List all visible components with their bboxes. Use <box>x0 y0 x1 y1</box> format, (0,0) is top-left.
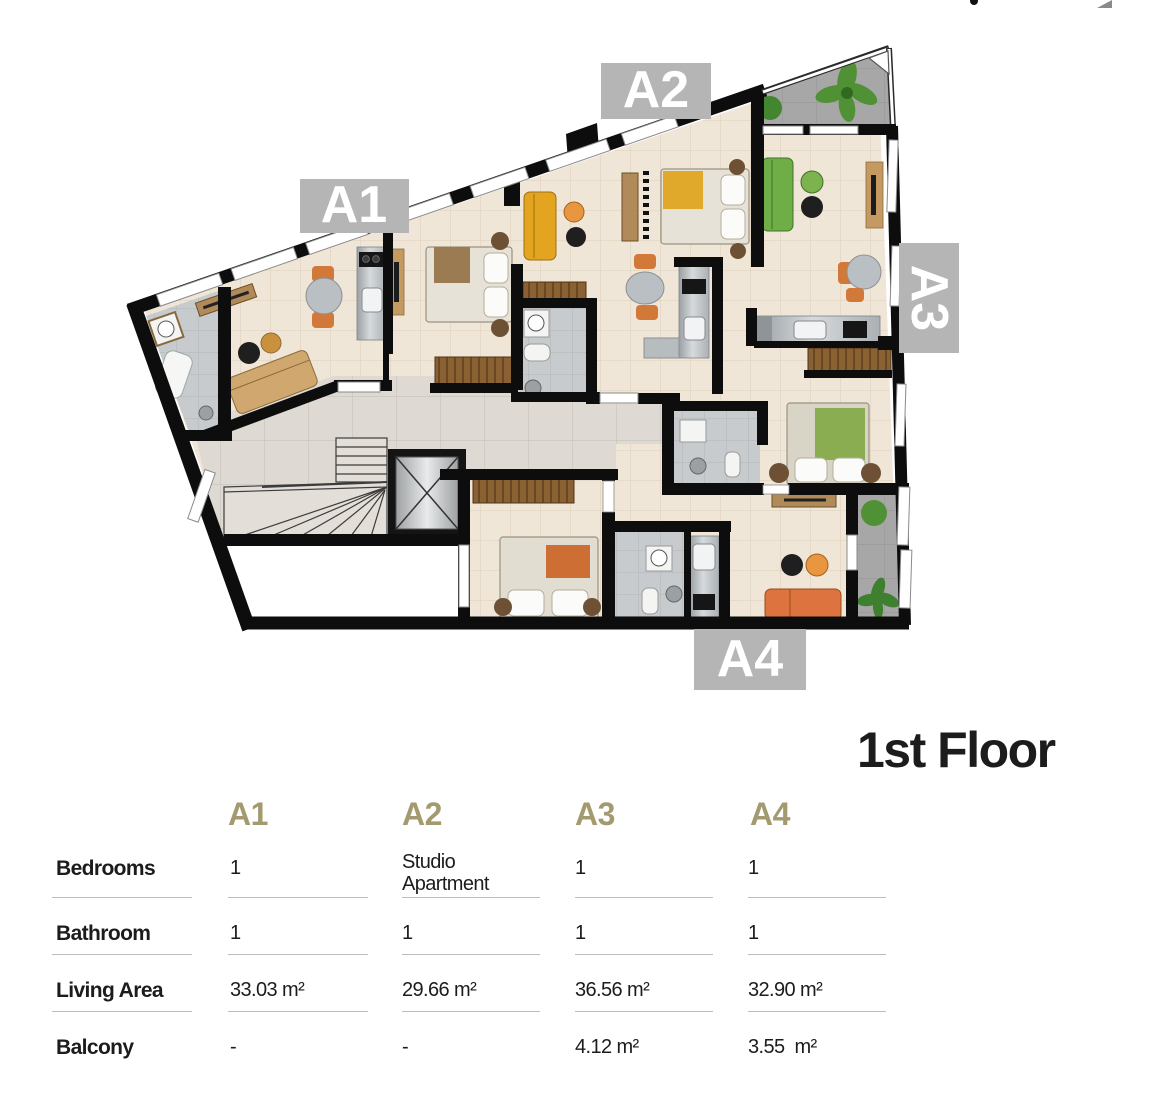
svg-text:A2: A2 <box>623 61 689 119</box>
svg-text:A3: A3 <box>900 265 958 331</box>
svg-text:A4: A4 <box>717 630 784 688</box>
svg-text:A1: A1 <box>321 176 387 234</box>
